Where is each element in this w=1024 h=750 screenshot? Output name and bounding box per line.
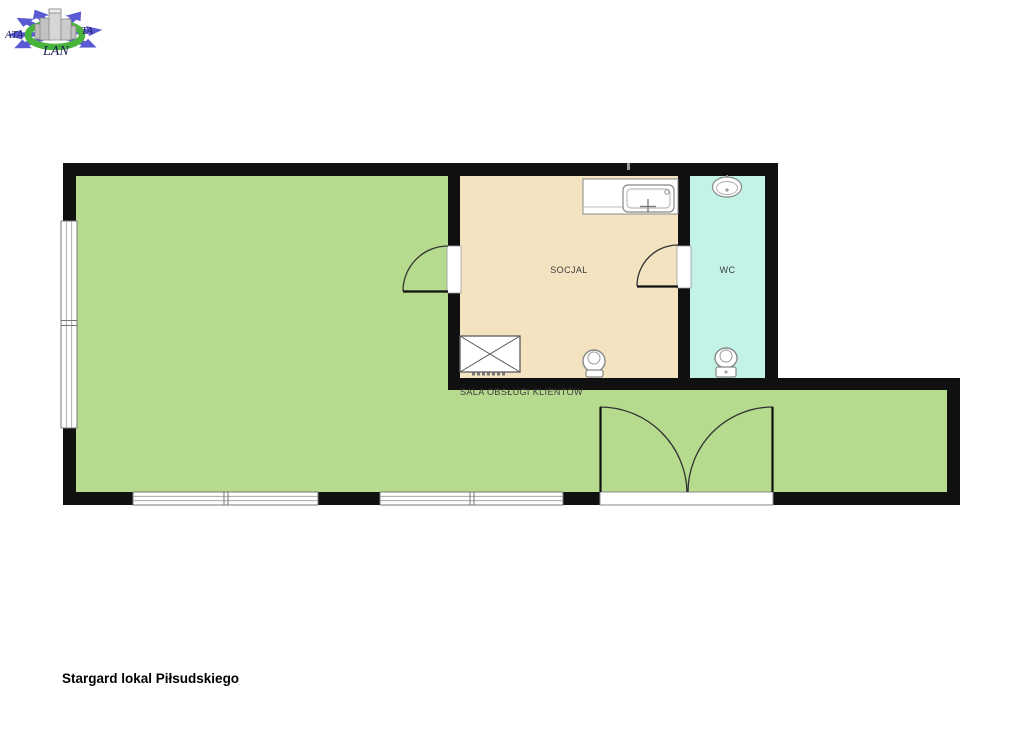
logo-text-lan: LAN	[42, 44, 69, 59]
wall-bottom	[63, 492, 960, 505]
room-wc	[690, 176, 765, 378]
wall-top	[63, 163, 778, 176]
room-label-wc: WC	[690, 265, 765, 275]
room-socjal	[460, 176, 678, 378]
logo-text-ata: ATA	[4, 29, 24, 41]
wall-wc-right	[765, 163, 778, 390]
wall-socjal-wc	[678, 176, 690, 390]
room-label-sala: SALA OBSŁUGI KLIENTÓW	[460, 387, 583, 397]
wall-right-lower	[947, 378, 960, 505]
wall-left-upper	[63, 163, 76, 222]
room-sala-obslugi-klientow-strip	[448, 390, 947, 492]
window-left-icon	[61, 221, 77, 428]
logo-text-ta: TA	[81, 25, 93, 37]
room-label-socjal: SOCJAL	[460, 265, 678, 275]
ata-lan-logo: ATA TA LAN	[2, 2, 114, 64]
plan-caption: Stargard lokal Piłsudskiego	[62, 671, 239, 686]
room-sala-obslugi-klientow	[76, 176, 448, 492]
wall-sala-socjal	[448, 176, 460, 390]
